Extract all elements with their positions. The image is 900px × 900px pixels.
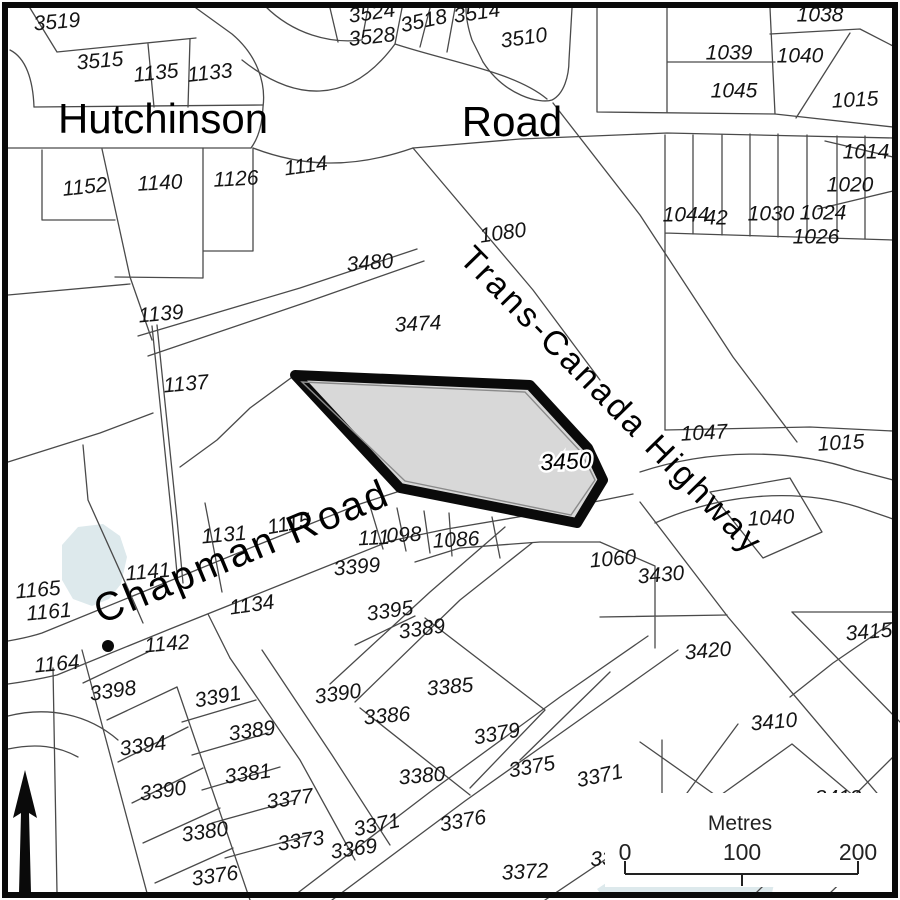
parcel-label-1026: 1026 [793, 226, 840, 249]
culdesac-dot [102, 640, 114, 652]
north-arrow-icon [13, 770, 37, 893]
parcel-label-3376: 3376 [190, 861, 240, 890]
parcel-label-1024: 1024 [800, 202, 847, 225]
parcel-label-3391: 3391 [193, 682, 243, 713]
scale-bar-title: Metres [708, 812, 772, 835]
parcel-label-3376: 3376 [438, 806, 488, 837]
parcel-label-3474: 3474 [394, 311, 442, 336]
parcel-label-3372: 3372 [501, 859, 549, 884]
parcel-label-3394: 3394 [118, 731, 167, 760]
parcel-label-1137: 1137 [162, 371, 210, 398]
parcel-label-3375: 3375 [507, 752, 557, 783]
map-page: 3519351511351133352435283518351435101038… [0, 0, 900, 900]
parcel-label-1040: 1040 [777, 45, 824, 68]
parcel-label-3390: 3390 [313, 679, 363, 708]
parcel-label-42: 42 [704, 207, 728, 230]
parcel-label-3371: 3371 [575, 760, 625, 792]
road-label-hutchinson: Hutchinson [58, 95, 268, 142]
parcel-label-3398: 3398 [88, 676, 138, 705]
parcel-label-1086: 1086 [432, 527, 480, 552]
parcel-label-1135: 1135 [132, 59, 180, 87]
parcel-label-3379: 3379 [472, 719, 522, 750]
highlighted-parcel-label: 3450 [540, 447, 593, 476]
parcel-label-3380: 3380 [180, 817, 230, 846]
parcel-label-3390: 3390 [138, 776, 188, 805]
parcel-label-1134: 1134 [228, 591, 276, 620]
parcel-label-1161: 1161 [25, 599, 72, 626]
parcel-label-3389: 3389 [227, 716, 277, 745]
scale-bar: Metres 0 100 200 [605, 793, 893, 887]
parcel-label-3385: 3385 [426, 674, 475, 701]
parcel-label-3381: 3381 [223, 759, 272, 788]
parcel-label-3369: 3369 [329, 834, 379, 863]
parcel-label-3399: 3399 [333, 554, 382, 581]
parcel-label-3386: 3386 [363, 703, 412, 730]
parcel-label-3380: 3380 [398, 763, 447, 790]
parcel-label-1020: 1020 [827, 174, 874, 197]
parcel-label-3373: 3373 [276, 826, 326, 855]
parcel-label-1060: 1060 [589, 546, 638, 573]
parcel-label-3528: 3528 [347, 23, 396, 51]
parcel-label-1139: 1139 [137, 301, 184, 328]
parcel-label-1133: 1133 [186, 59, 234, 87]
parcel-label-1015: 1015 [817, 430, 865, 455]
parcel-label-1047: 1047 [680, 420, 729, 445]
parcel-label-1140: 1140 [137, 170, 184, 195]
parcel-label-3415: 3415 [845, 619, 894, 646]
parcel-label-3519: 3519 [33, 9, 82, 36]
parcel-label-1152: 1152 [61, 173, 109, 201]
parcel-label-3430: 3430 [637, 562, 686, 589]
road-label-road: Road [462, 98, 562, 145]
parcel-label-1039: 1039 [706, 42, 753, 65]
parcel-label-1015: 1015 [831, 87, 879, 112]
scale-tick-100: 100 [723, 839, 761, 865]
parcel-label-098: 098 [386, 523, 423, 548]
parcel-label-1142: 1142 [143, 631, 190, 658]
map-canvas: 3519351511351133352435283518351435101038… [0, 0, 900, 900]
parcel-label-1030: 1030 [748, 203, 795, 226]
parcel-label-3377: 3377 [265, 784, 316, 813]
parcel-label-3420: 3420 [684, 638, 733, 665]
parcel-label-3510: 3510 [499, 23, 549, 52]
parcel-label-3515: 3515 [76, 48, 125, 75]
parcel-label-1080: 1080 [478, 218, 528, 247]
parcel-label-1114: 1114 [283, 152, 329, 181]
parcel-label-1044: 1044 [663, 204, 710, 227]
parcel-label-1164: 1164 [33, 651, 80, 678]
parcel-label-1014: 1014 [843, 141, 890, 164]
parcel-label-1045: 1045 [711, 80, 758, 103]
parcel-label-3410: 3410 [750, 709, 799, 736]
parcel-label-3480: 3480 [346, 250, 395, 277]
parcel-label-1126: 1126 [213, 166, 260, 191]
parcel-label-3518: 3518 [399, 5, 450, 37]
